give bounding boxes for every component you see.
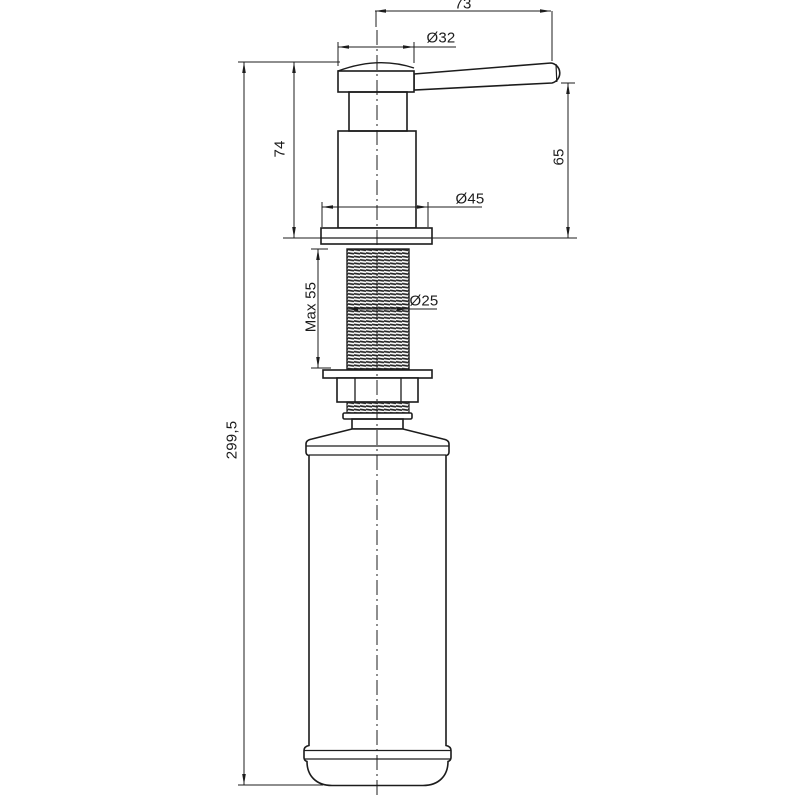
dim-label-total-height: 299,5	[225, 421, 240, 460]
drawing-geometry	[0, 0, 800, 800]
bottle-thread	[347, 402, 409, 413]
dispenser-outline	[304, 63, 560, 786]
dim-label-handle-length: 73	[454, 0, 471, 12]
dim-label-thread-length: Max 55	[304, 282, 319, 332]
dim-handle-length	[375, 9, 552, 61]
dim-label-spout-height: 65	[552, 148, 567, 165]
dim-label-thread-diameter: Ø25	[410, 294, 439, 309]
pump-head	[338, 63, 414, 92]
dim-total-height	[242, 62, 246, 785]
dim-label-flange-diameter: Ø45	[456, 192, 485, 207]
dim-label-head-diameter: Ø32	[427, 31, 456, 46]
dim-pump-height	[292, 62, 296, 238]
technical-drawing-canvas: 73 Ø32 74 65 Ø45 Max 55 Ø25 299,5	[0, 0, 800, 800]
spout-handle	[414, 63, 560, 90]
dim-label-pump-height: 74	[273, 140, 288, 157]
pump-neck	[349, 92, 407, 131]
